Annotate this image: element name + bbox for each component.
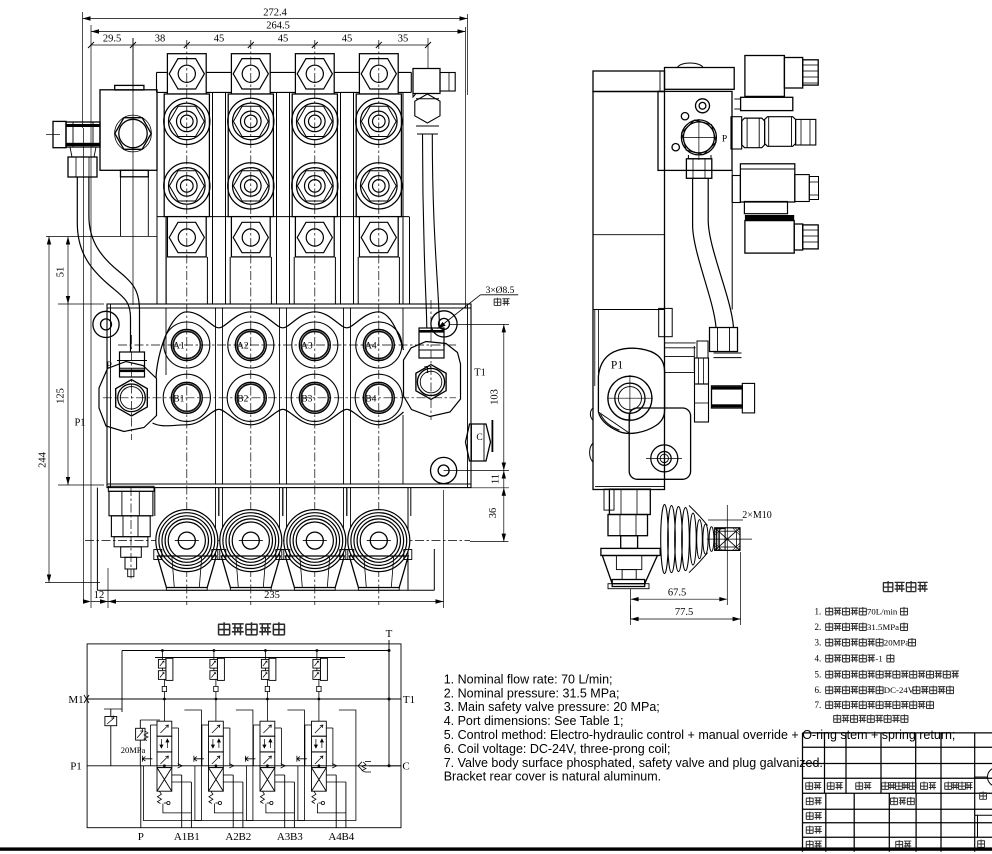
svg-text:P: P xyxy=(722,135,727,145)
svg-text:1.: 1. xyxy=(815,607,822,617)
svg-text:B4: B4 xyxy=(365,394,376,404)
svg-text:6.: 6. xyxy=(815,685,822,695)
svg-text:264.5: 264.5 xyxy=(266,21,290,32)
svg-text:A3: A3 xyxy=(301,342,313,352)
svg-text:Bracket rear cover is natural: Bracket rear cover is natural aluminum. xyxy=(444,770,661,784)
svg-text:2.: 2. xyxy=(815,622,822,632)
svg-text:P1: P1 xyxy=(74,418,85,429)
svg-text:77.5: 77.5 xyxy=(675,607,693,618)
svg-text:2×M10: 2×M10 xyxy=(742,510,772,521)
svg-text:T1: T1 xyxy=(403,694,415,706)
svg-text:51: 51 xyxy=(56,267,67,278)
svg-text:3. Main safety valve pressure:: 3. Main safety valve pressure: 20 MPa; xyxy=(444,700,660,714)
svg-text:125: 125 xyxy=(56,388,67,404)
svg-text:A4: A4 xyxy=(365,342,377,352)
svg-text:P: P xyxy=(138,831,144,843)
svg-text:B3: B3 xyxy=(290,831,303,843)
svg-text:B1: B1 xyxy=(173,394,184,404)
svg-text:B1: B1 xyxy=(187,831,200,843)
svg-text:29.5: 29.5 xyxy=(103,34,121,45)
svg-text:P1: P1 xyxy=(611,360,623,372)
svg-text:272.4: 272.4 xyxy=(263,8,287,19)
svg-text:A1: A1 xyxy=(174,831,187,843)
svg-text:2. Nominal pressure: 31.5 MPa;: 2. Nominal pressure: 31.5 MPa; xyxy=(444,686,620,700)
svg-text:A2: A2 xyxy=(225,831,238,843)
svg-text:67.5: 67.5 xyxy=(668,588,686,599)
svg-text:B2: B2 xyxy=(238,831,251,843)
svg-text:A2: A2 xyxy=(237,342,249,352)
svg-text:7.: 7. xyxy=(815,700,822,710)
svg-text:45: 45 xyxy=(278,34,289,45)
svg-text:235: 235 xyxy=(264,590,280,601)
svg-text:B2: B2 xyxy=(237,394,248,404)
svg-text:31.5MPa: 31.5MPa xyxy=(867,622,899,632)
svg-text:38: 38 xyxy=(155,34,166,45)
svg-text:T: T xyxy=(424,365,431,376)
svg-text:103: 103 xyxy=(490,389,501,405)
svg-text:45: 45 xyxy=(342,34,353,45)
svg-text:T: T xyxy=(386,628,393,640)
svg-text:A4: A4 xyxy=(328,831,342,843)
svg-text:T1: T1 xyxy=(474,368,486,379)
svg-text:C: C xyxy=(476,433,482,443)
svg-text:20MPa: 20MPa xyxy=(884,637,910,647)
svg-text:P1: P1 xyxy=(70,761,82,773)
svg-text:3.: 3. xyxy=(815,638,822,648)
svg-text:4.: 4. xyxy=(815,654,822,664)
svg-text:M1: M1 xyxy=(68,694,83,706)
svg-text:36: 36 xyxy=(488,508,499,519)
svg-text:C: C xyxy=(402,761,409,773)
svg-text:DC-24V: DC-24V xyxy=(884,685,915,695)
svg-text:70L/min: 70L/min xyxy=(867,606,898,616)
svg-text:4. Port dimensions: See Table: 4. Port dimensions: See Table 1; xyxy=(444,714,624,728)
svg-text:12: 12 xyxy=(94,590,105,601)
svg-text:B3: B3 xyxy=(301,394,312,404)
svg-text:5.: 5. xyxy=(815,670,822,680)
svg-text:11: 11 xyxy=(491,474,502,484)
svg-text:20MPa: 20MPa xyxy=(121,745,146,755)
svg-text:1. Nominal flow rate: 70 L/min: 1. Nominal flow rate: 70 L/min; xyxy=(444,672,613,686)
svg-text:244: 244 xyxy=(38,451,49,468)
svg-text:6. Coil voltage: DC-24V, three: 6. Coil voltage: DC-24V, three-prong coi… xyxy=(444,742,671,756)
svg-text:35: 35 xyxy=(398,34,409,45)
svg-text:B4: B4 xyxy=(341,831,354,843)
svg-text:7. Valve body surface phosphat: 7. Valve body surface phosphated, safety… xyxy=(444,756,823,770)
svg-text:A3: A3 xyxy=(277,831,291,843)
svg-text:45: 45 xyxy=(214,34,225,45)
svg-text:A1: A1 xyxy=(173,342,185,352)
svg-text:-1: -1 xyxy=(875,653,882,663)
svg-text:P: P xyxy=(106,361,112,372)
svg-text:5. Control method: Electro-hyd: 5. Control method: Electro-hydraulic con… xyxy=(444,728,956,742)
